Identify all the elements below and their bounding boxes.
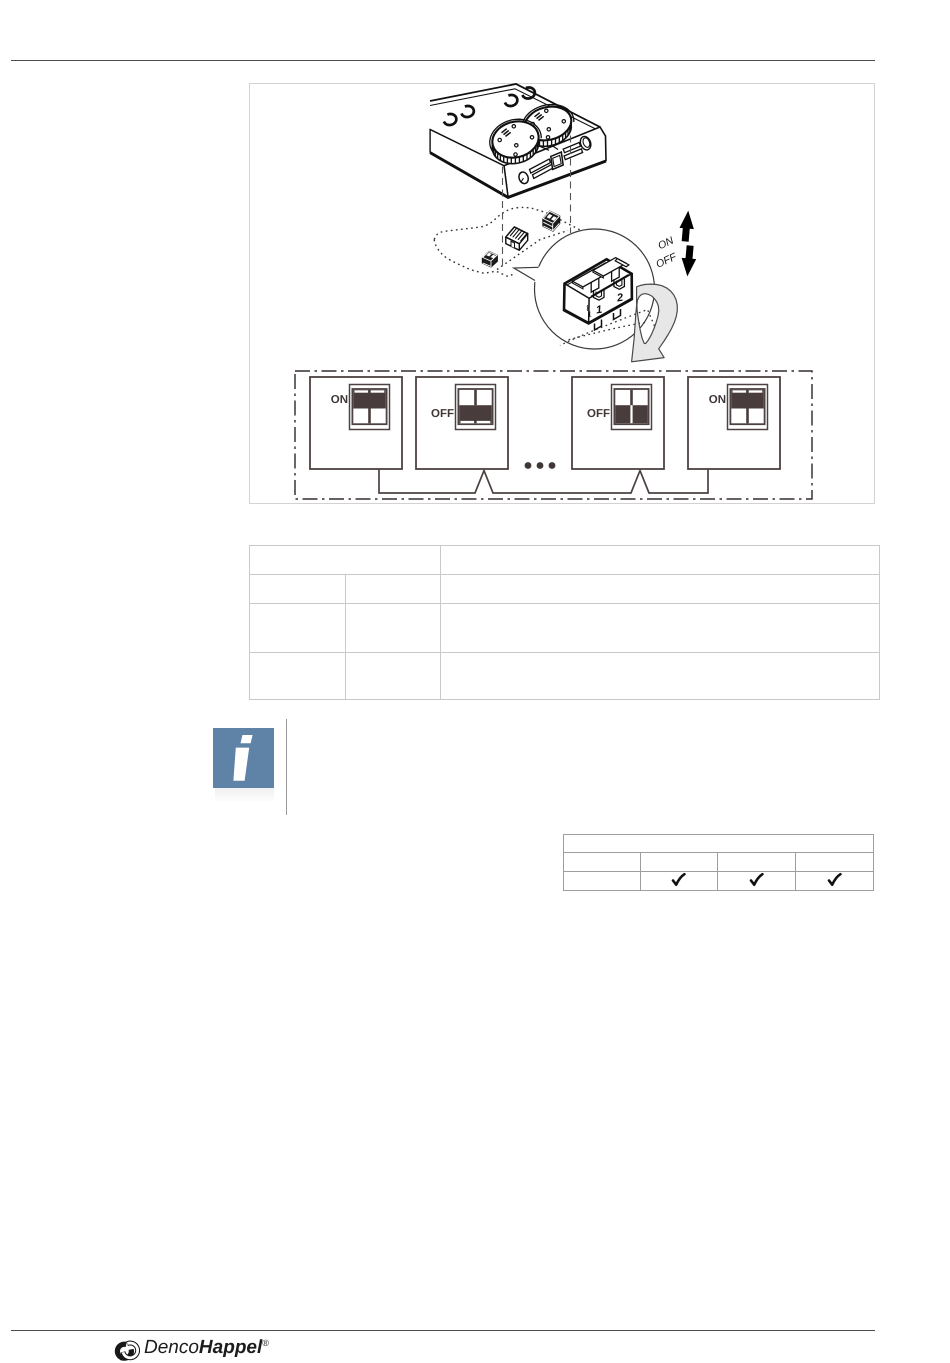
svg-text:OFF: OFF: [654, 251, 679, 271]
svg-text:OFF: OFF: [431, 408, 454, 420]
svg-text:ON: ON: [709, 394, 726, 406]
svg-text:ON: ON: [331, 394, 348, 406]
svg-text:ON: ON: [656, 235, 676, 253]
svg-text:OFF: OFF: [587, 408, 610, 420]
